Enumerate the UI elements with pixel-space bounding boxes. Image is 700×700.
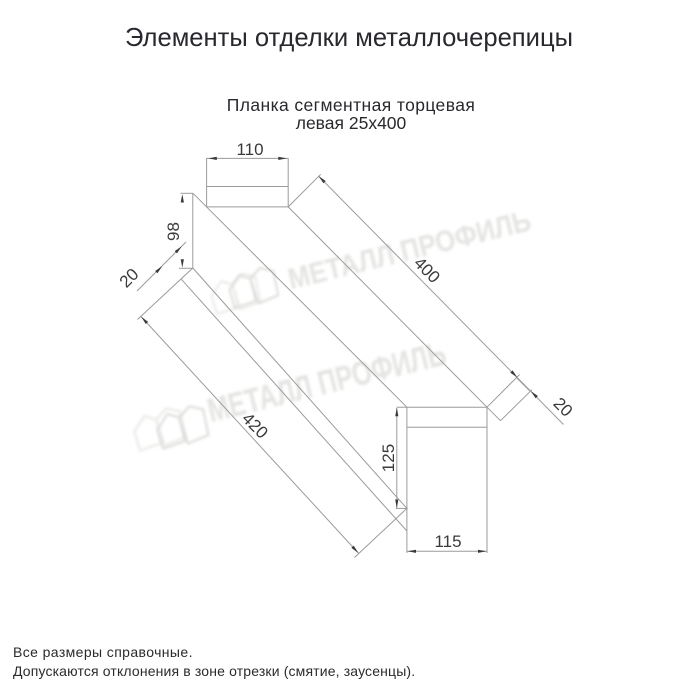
- svg-text:98: 98: [164, 222, 183, 241]
- svg-text:левая 25х400: левая 25х400: [296, 113, 407, 133]
- svg-text:Допускаются отклонения в зоне: Допускаются отклонения в зоне отрезки (с…: [13, 663, 415, 679]
- svg-text:110: 110: [236, 140, 263, 159]
- svg-text:115: 115: [434, 532, 461, 551]
- svg-text:Элементы отделки металлочерепи: Элементы отделки металлочерепицы: [125, 24, 573, 52]
- svg-text:Все размеры справочные.: Все размеры справочные.: [13, 644, 193, 660]
- svg-text:125: 125: [379, 444, 398, 472]
- svg-text:Планка сегментная торцевая: Планка сегментная торцевая: [227, 95, 475, 115]
